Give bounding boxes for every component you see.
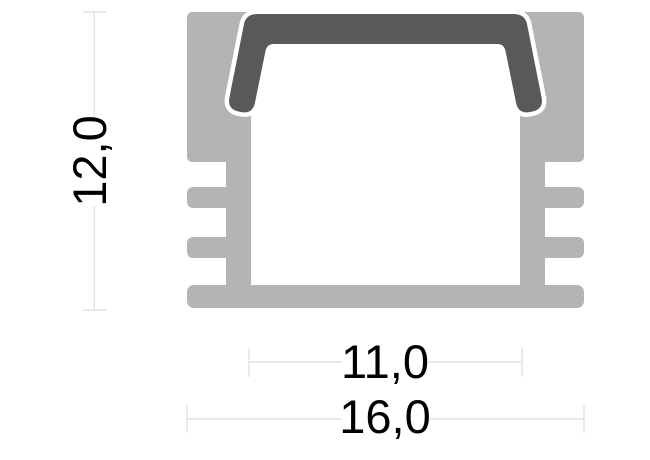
right-fin-lower [536, 237, 584, 258]
height-dimension-label: 12,0 [63, 115, 116, 206]
diffuser-cover [229, 14, 542, 112]
right-fin-upper [536, 187, 584, 208]
left-wall [226, 155, 251, 295]
left-fin-upper [187, 187, 235, 208]
profile-cross-section-drawing: 12,0 11,0 16,0 [0, 0, 650, 460]
right-wall [520, 155, 545, 295]
outer-width-dimension-label: 16,0 [339, 390, 430, 443]
base-plate [187, 285, 584, 308]
left-fin-lower [187, 237, 235, 258]
drawing-canvas: 12,0 11,0 16,0 [0, 0, 650, 460]
inner-width-dimension-label: 11,0 [341, 335, 429, 388]
cover-body [229, 14, 542, 112]
